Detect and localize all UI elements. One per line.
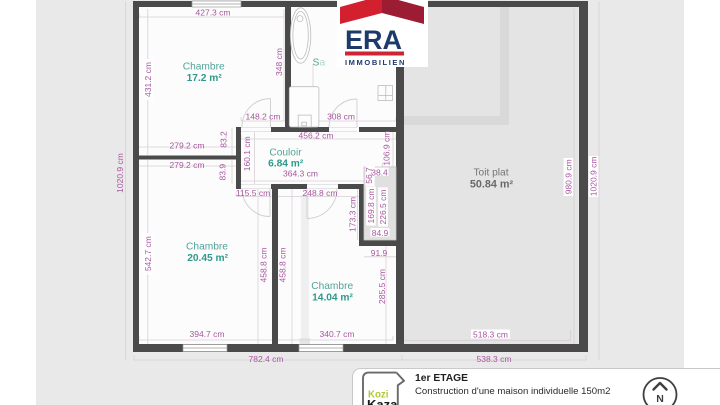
svg-text:308 cm: 308 cm	[327, 112, 355, 122]
svg-text:394.7 cm: 394.7 cm	[190, 329, 225, 339]
svg-text:Toit plat: Toit plat	[473, 167, 508, 178]
svg-text:285.5 cm: 285.5 cm	[377, 269, 387, 304]
svg-text:364.3 cm: 364.3 cm	[283, 169, 318, 179]
svg-text:84.9: 84.9	[372, 228, 389, 238]
svg-text:279.2 cm: 279.2 cm	[170, 160, 205, 170]
svg-text:427.3 cm: 427.3 cm	[196, 8, 231, 18]
svg-text:a: a	[320, 58, 326, 69]
svg-text:Chambre: Chambre	[183, 61, 225, 72]
svg-text:83.9: 83.9	[218, 164, 228, 181]
svg-text:782.4 cm: 782.4 cm	[249, 354, 284, 364]
svg-text:56.7: 56.7	[364, 167, 374, 184]
svg-text:980.9 cm: 980.9 cm	[563, 159, 573, 194]
svg-text:456.2 cm: 456.2 cm	[299, 131, 334, 141]
svg-text:542.7 cm: 542.7 cm	[143, 236, 153, 271]
svg-text:1020.9 cm: 1020.9 cm	[589, 157, 599, 197]
svg-text:20.45 m²: 20.45 m²	[187, 253, 228, 264]
svg-text:279.2 cm: 279.2 cm	[170, 141, 205, 151]
svg-text:91.9: 91.9	[371, 248, 388, 258]
svg-text:Kaza: Kaza	[367, 397, 398, 405]
svg-text:Couloir: Couloir	[269, 147, 302, 158]
svg-text:340.7 cm: 340.7 cm	[320, 329, 355, 339]
svg-text:1er ETAGE: 1er ETAGE	[415, 373, 468, 384]
svg-text:538.3 cm: 538.3 cm	[477, 354, 512, 364]
svg-text:ERA: ERA	[345, 25, 402, 55]
svg-text:458.8 cm: 458.8 cm	[259, 248, 269, 283]
svg-text:50.84 m²: 50.84 m²	[470, 178, 514, 190]
svg-text:Chambre: Chambre	[311, 281, 353, 292]
svg-text:169.8 cm: 169.8 cm	[366, 189, 376, 224]
svg-text:173.3 cm: 173.3 cm	[347, 197, 357, 232]
svg-text:115.5 cm: 115.5 cm	[236, 188, 270, 198]
svg-text:Chambre: Chambre	[186, 241, 228, 252]
svg-text:S: S	[313, 58, 320, 69]
svg-text:148.2 cm: 148.2 cm	[246, 112, 281, 122]
svg-text:348 cm: 348 cm	[274, 48, 284, 76]
svg-text:248.8 cm: 248.8 cm	[303, 188, 338, 198]
svg-text:226.5 cm: 226.5 cm	[378, 190, 388, 225]
svg-text:518.3 cm: 518.3 cm	[473, 330, 508, 340]
svg-text:14.04 m²: 14.04 m²	[312, 292, 353, 303]
svg-text:17.2 m²: 17.2 m²	[187, 73, 223, 84]
svg-text:106.9 cm: 106.9 cm	[382, 131, 392, 166]
svg-text:1020.9 cm: 1020.9 cm	[115, 153, 125, 193]
svg-text:160.1 cm: 160.1 cm	[242, 136, 252, 171]
svg-text:IMMOBILIEN: IMMOBILIEN	[345, 58, 406, 67]
svg-text:431.2 cm: 431.2 cm	[143, 62, 153, 97]
svg-text:Construction d'une maison indi: Construction d'une maison individuelle 1…	[415, 386, 610, 397]
svg-text:458.8 cm: 458.8 cm	[278, 248, 288, 283]
svg-text:N: N	[656, 393, 664, 405]
svg-text:83.2: 83.2	[219, 131, 229, 148]
